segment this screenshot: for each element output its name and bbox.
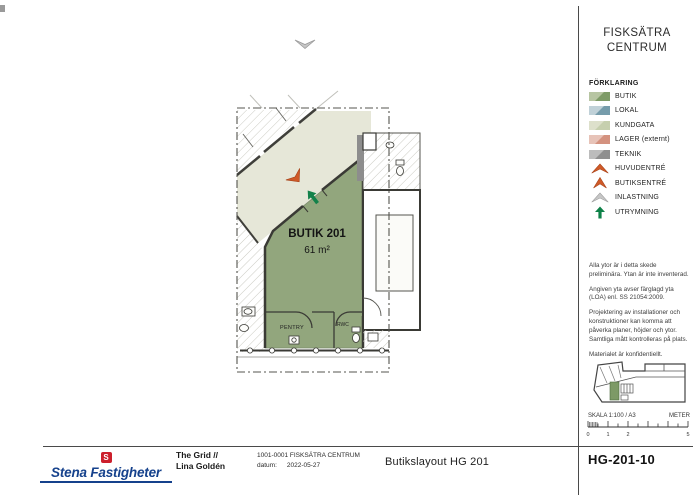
legend-label: LOKAL: [615, 107, 639, 114]
consultant-company: The Grid //: [176, 450, 225, 461]
drawing-number: HG-201-10: [588, 452, 655, 467]
consultant-block: The Grid // Lina Goldén: [176, 450, 225, 473]
huvudentre-arrow-icon: [590, 163, 610, 175]
room-area-label: 61 m²: [304, 245, 330, 256]
kundgata-swatch-icon: [589, 121, 610, 130]
project-title: FISKSÄTRA CENTRUM: [580, 26, 694, 56]
sidebar-divider: [578, 6, 579, 495]
date-label: datum:: [257, 462, 277, 469]
utrymning-arrow-icon: [590, 206, 610, 219]
key-plan: [588, 360, 692, 410]
shaft-box: [363, 133, 376, 150]
legend-item-butiksentre: BUTIKSENTRÉ: [589, 178, 695, 188]
legend-label: BUTIK: [615, 93, 637, 100]
legend: FÖRKLARING BUTIK LOKAL KUNDGATA LAGER (e…: [589, 80, 695, 222]
legend-label: HUVUDENTRÉ: [615, 165, 666, 172]
legend-label: TEKNIK: [615, 151, 641, 158]
scale-label: SKALA 1:100 / A3: [588, 413, 636, 419]
butiksentre-arrow-icon: [590, 177, 610, 189]
small-closet: [368, 333, 378, 341]
note: Angiven yta avser färglagd yta (LOA) enl…: [589, 286, 691, 304]
rwc-label: RWC: [337, 322, 349, 328]
legend-label: INLASTNING: [615, 194, 659, 201]
legend-item-butik: BUTIK: [589, 91, 695, 101]
scale-tick-label: 5: [686, 432, 689, 438]
note: Alla ytor är i detta skede preliminära. …: [589, 262, 691, 280]
date-value: 2022-05-27: [287, 462, 320, 469]
stena-fastigheter-logo: S Stena Fastigheter: [40, 447, 172, 483]
project-block: 1001-0001 FISKSÄTRA CENTRUM datum:2022-0…: [257, 451, 360, 471]
scale-tick-label: 1: [606, 432, 609, 438]
project-title-line2: CENTRUM: [580, 41, 694, 56]
logo-text: Stena Fastigheter: [40, 465, 172, 480]
scale-tick-label: 2: [626, 432, 629, 438]
note: Projektering av installationer och konst…: [589, 309, 691, 344]
project-title-line1: FISKSÄTRA: [580, 26, 694, 41]
lokal-swatch-icon: [589, 106, 610, 115]
scale-ticks: [588, 421, 688, 427]
lager-swatch-icon: [589, 135, 610, 144]
scale-bar: SKALA 1:100 / A3 METER 0 1 2 5: [586, 410, 694, 440]
note: Materialet är konfidentiellt.: [589, 351, 691, 360]
inlastning-arrow-icon: [590, 192, 610, 204]
legend-item-huvudentre: HUVUDENTRÉ: [589, 164, 695, 174]
drawing-title: Butikslayout HG 201: [385, 456, 489, 468]
adjacent-room-core: [376, 215, 413, 291]
legend-item-utrymning: UTRYMNING: [589, 207, 695, 217]
legend-heading: FÖRKLARING: [589, 80, 695, 87]
legend-label: LAGER (externt): [615, 136, 670, 143]
legend-item-teknik: TEKNIK: [589, 149, 695, 159]
teknik-swatch-icon: [589, 150, 610, 159]
legend-label: BUTIKSENTRÉ: [615, 180, 666, 187]
key-plan-highlight: [610, 382, 619, 400]
legend-item-kundgata: KUNDGATA: [589, 120, 695, 130]
legend-item-inlastning: INLASTNING: [589, 193, 695, 203]
floor-plan: BUTIK 201 61 m² PENTRY RWC: [0, 0, 578, 444]
faint-wall-lines: [250, 91, 338, 109]
room-label: BUTIK 201: [288, 228, 346, 240]
legend-item-lokal: LOKAL: [589, 106, 695, 116]
pentry-label: PENTRY: [280, 325, 304, 331]
scale-fine-ticks: [590, 422, 598, 427]
scale-tick-label: 0: [586, 432, 589, 438]
drawing-sheet: BUTIK 201 61 m² PENTRY RWC: [0, 0, 700, 495]
logo-underline: [40, 481, 172, 483]
butik-swatch-icon: [589, 92, 610, 101]
inlastning-arrow: [295, 40, 315, 49]
stena-logo-icon: S: [101, 452, 112, 463]
scale-unit: METER: [669, 413, 691, 419]
general-notes: Alla ytor är i detta skede preliminära. …: [589, 262, 691, 365]
legend-item-lager: LAGER (externt): [589, 135, 695, 145]
legend-label: KUNDGATA: [615, 122, 654, 129]
consultant-author: Lina Goldén: [176, 461, 225, 472]
legend-label: UTRYMNING: [615, 209, 659, 216]
project-id: 1001-0001 FISKSÄTRA CENTRUM: [257, 451, 360, 461]
